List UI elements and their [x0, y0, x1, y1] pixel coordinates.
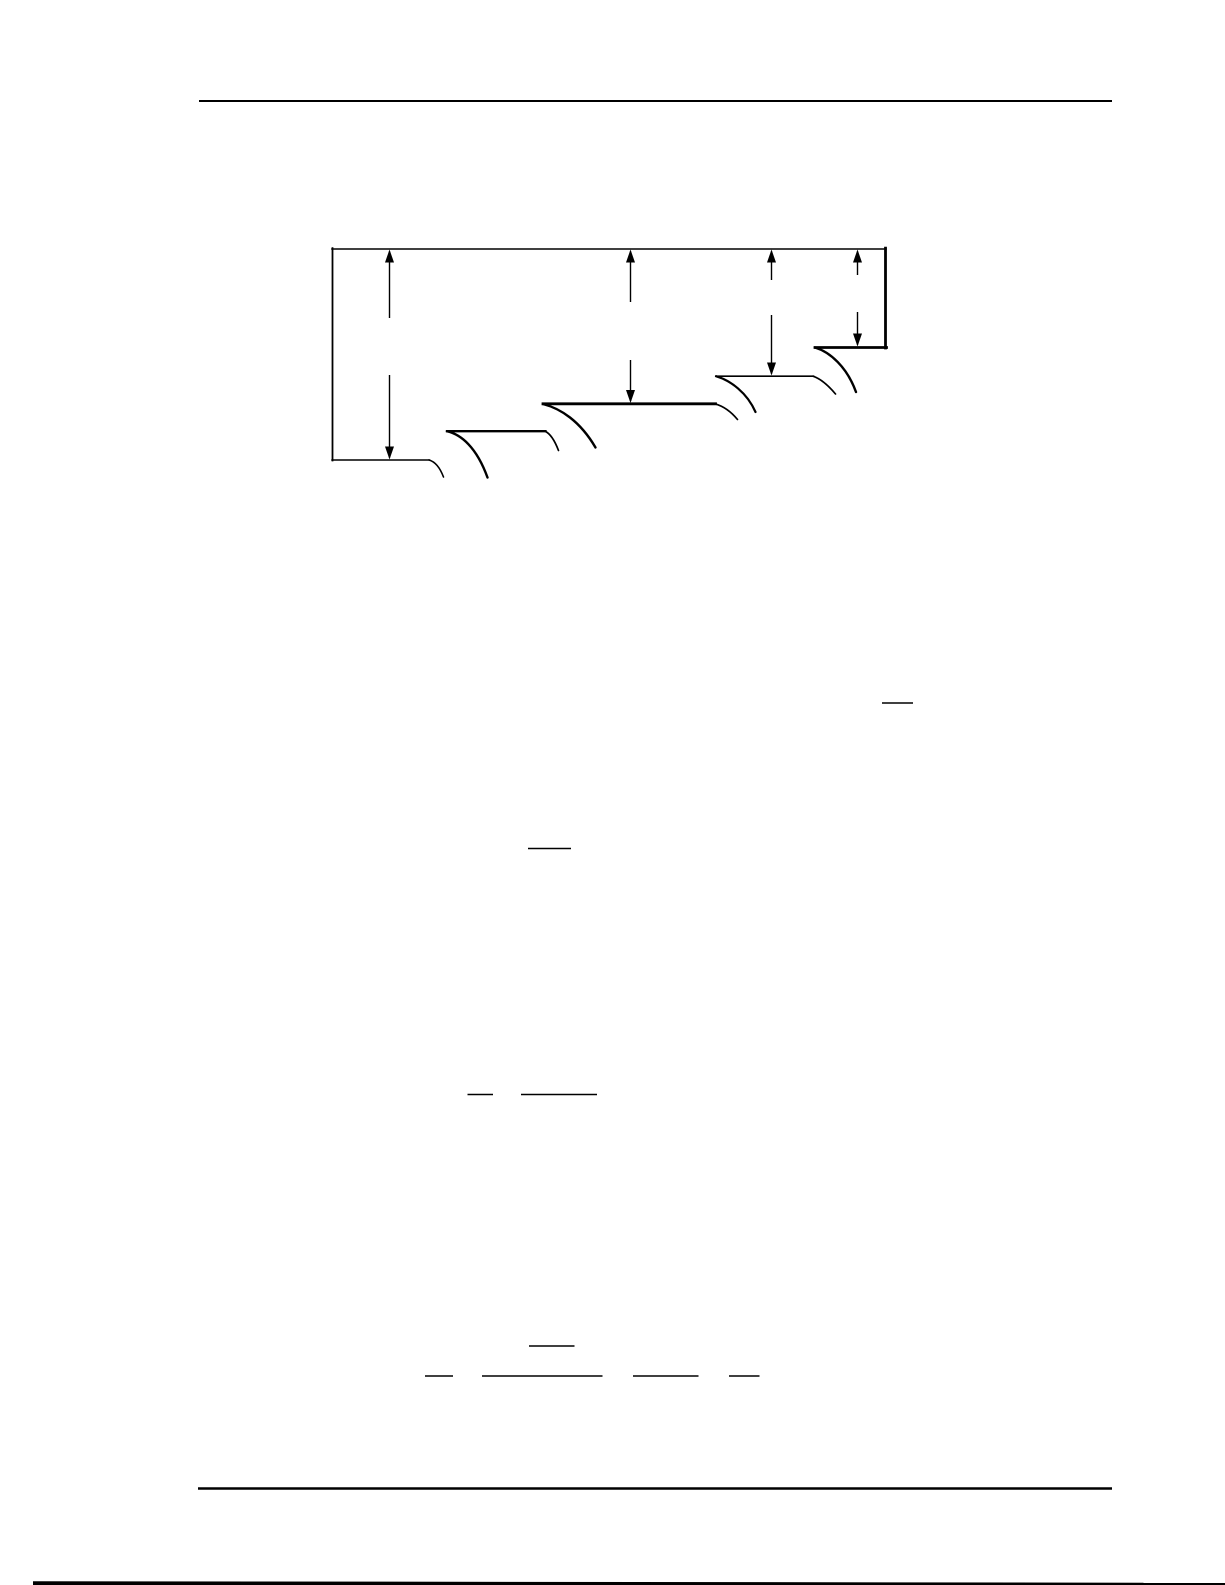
- figure-curve-pool2-brink-drawdown: [545, 431, 559, 450]
- page-graphics: [0, 0, 1225, 1585]
- depth-arrow-4-down-arrowhead-icon: [853, 334, 862, 347]
- document-page: [0, 0, 1225, 1585]
- figure-curve-pool4-brink-drawdown: [813, 376, 836, 394]
- page-bottom-edge-shadow: [33, 1581, 1225, 1585]
- figure-curve-nappe-from-pool3: [543, 404, 596, 448]
- depth-arrow-2-down-arrowhead-icon: [626, 390, 635, 403]
- depth-arrow-3-down-arrowhead-icon: [767, 363, 776, 376]
- depth-arrow-3-up-arrowhead-icon: [767, 250, 776, 263]
- depth-arrow-4-up-arrowhead-icon: [853, 250, 862, 263]
- depth-arrow-2-up-arrowhead-icon: [626, 250, 635, 263]
- figure-curve-nappe-from-pool2: [447, 431, 488, 477]
- figure-curve-pool3-brink-drawdown: [715, 404, 738, 420]
- depth-arrow-1-up-arrowhead-icon: [385, 250, 394, 263]
- figure-curve-pool1-brink-drawdown: [429, 460, 444, 477]
- depth-arrow-1-down-arrowhead-icon: [385, 447, 394, 460]
- figure-curve-nappe-from-pool5: [815, 348, 856, 393]
